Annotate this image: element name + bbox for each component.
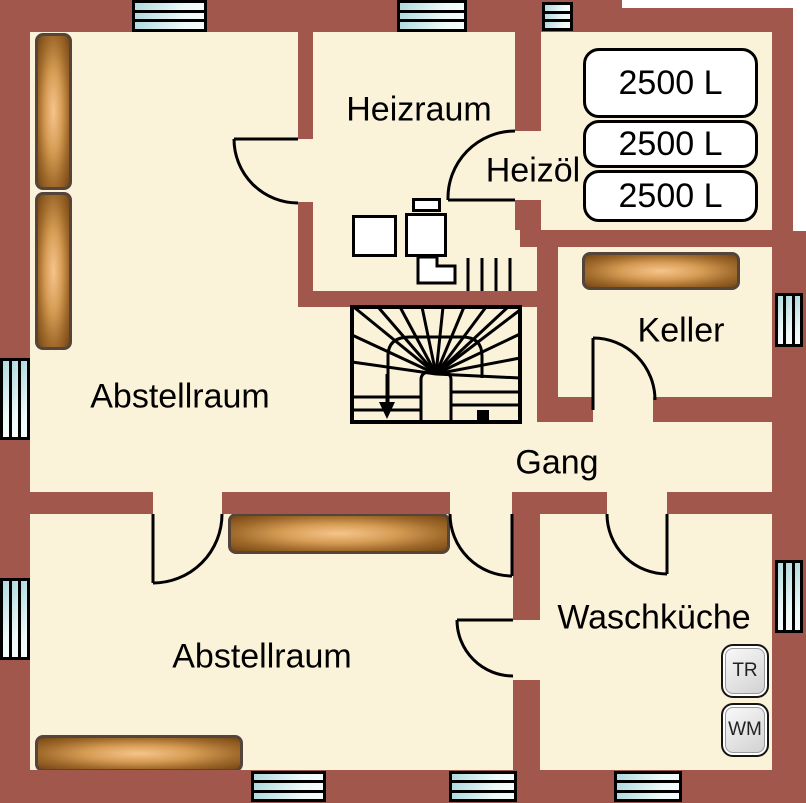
oil-tank-3-label: 2500 L: [619, 177, 723, 216]
oil-tank-1: 2500 L: [583, 48, 758, 118]
shelf-bottom: [35, 735, 243, 772]
wall-heizraum-west-upper: [298, 32, 313, 139]
room-label-gang: Gang: [515, 444, 598, 483]
window-left-1: [0, 358, 30, 440]
wall-keller-west: [537, 247, 558, 397]
room-label-abstellraum-nw: Abstellraum: [90, 378, 270, 417]
oil-tank-1-label: 2500 L: [619, 64, 723, 103]
wall-heizraum-south: [300, 291, 538, 307]
wall-heizoel-west-upper: [515, 32, 541, 131]
shelf-left-lower: [35, 192, 72, 350]
window-top-2: [397, 0, 467, 32]
wall-keller-south-east: [653, 397, 773, 422]
window-top-3: [542, 2, 573, 31]
room-label-keller: Keller: [638, 312, 725, 351]
wall-mid-1: [28, 492, 153, 514]
room-label-waschkueche: Waschküche: [557, 599, 750, 638]
shelf-keller: [582, 252, 740, 290]
boiler-unit: [405, 213, 447, 257]
window-left-2: [0, 578, 30, 660]
washer-label: WM: [728, 719, 762, 741]
wall-mid-4: [667, 492, 773, 514]
boiler-cap: [412, 198, 441, 212]
wall-mid-2: [222, 492, 450, 514]
wall-right-upper: [772, 32, 793, 231]
wall-mid-3: [512, 492, 607, 514]
wall-top-right: [622, 8, 793, 32]
floor-plan: 2500 L 2500 L 2500 L TR WM: [0, 0, 806, 803]
washer-box: WM: [721, 703, 769, 757]
dryer-box: TR: [721, 644, 769, 698]
shelf-left-upper: [35, 33, 72, 190]
wall-bottom: [0, 770, 806, 803]
dryer-label: TR: [732, 660, 757, 682]
window-bottom-3: [614, 771, 682, 802]
window-top-1: [132, 0, 207, 32]
wall-heizoel-west-lower: [515, 200, 541, 230]
room-label-heizraum: Heizraum: [346, 91, 491, 130]
window-bottom-2: [449, 771, 517, 802]
oil-tank-2: 2500 L: [583, 120, 758, 168]
oil-tank-3: 2500 L: [583, 170, 758, 222]
window-right-1: [775, 293, 803, 347]
wall-top-left: [0, 0, 622, 32]
wall-wasch-west-lower: [513, 680, 540, 770]
oil-tank-2-label: 2500 L: [619, 125, 723, 164]
room-label-heizoel: Heizöl: [486, 152, 580, 191]
wall-wasch-west-upper: [513, 514, 540, 620]
window-bottom-1: [251, 771, 326, 802]
room-label-abstellraum-sw: Abstellraum: [172, 638, 352, 677]
wall-heizoel-south: [520, 230, 772, 247]
boiler-tank: [352, 215, 397, 257]
wall-keller-south-west: [537, 397, 593, 422]
shelf-middle: [228, 513, 450, 554]
window-right-2: [775, 560, 803, 633]
